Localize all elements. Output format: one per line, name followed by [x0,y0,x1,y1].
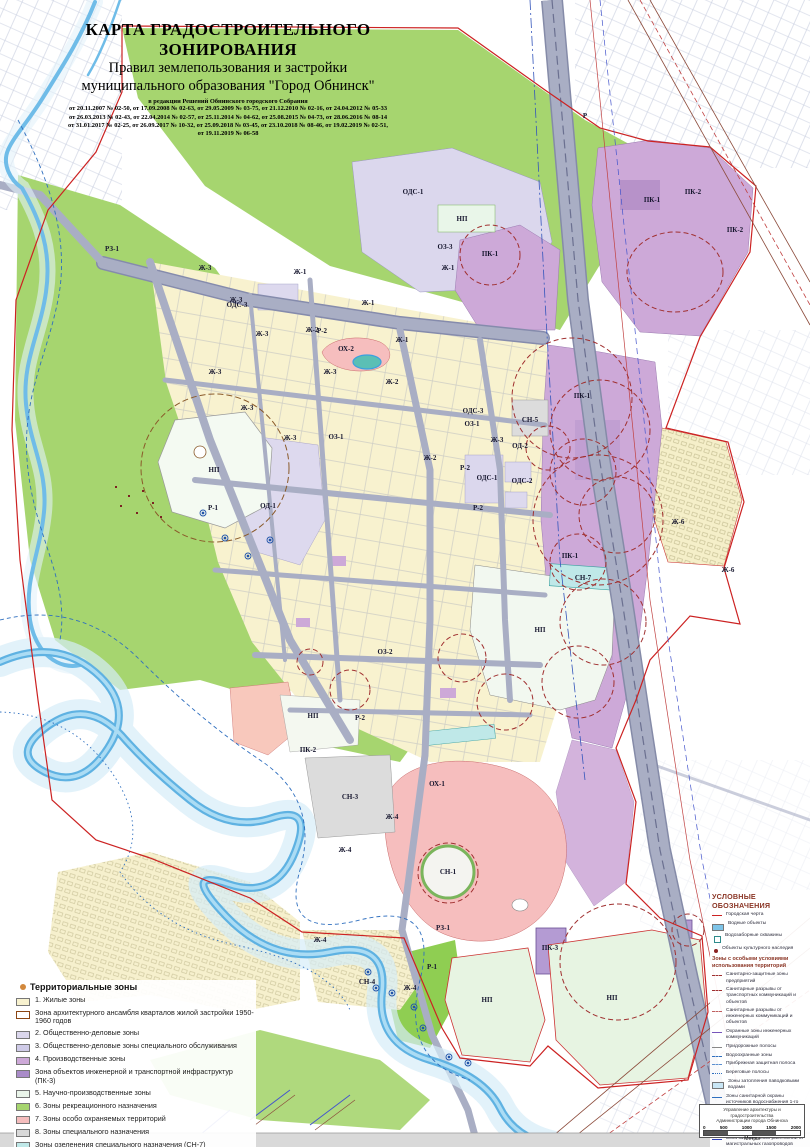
symbol-legend-item: Санитарные разрывы от транспортных комму… [712,987,810,1005]
water-protection-icon [712,1056,722,1057]
symbols-legend-subheader: Зоны с особыми условиями использования т… [712,956,810,970]
city-boundary-icon [712,915,722,916]
symbol-legend-item: Объекты культурного наследия [712,946,810,953]
symbol-legend-item: Придорожные полосы [712,1044,810,1050]
symbol-legend-label: Санитарные разрывы от инженерных коммуни… [726,1008,810,1026]
zone-legend-item: 1. Жилые зоны [16,996,254,1006]
symbol-legend-label: Прибрежная защитная полоса [726,1061,795,1067]
zoning-map-page: КАРТА ГРАДОСТРОИТЕЛЬНОГО ЗОНИРОВАНИЯ Пра… [0,0,810,1147]
heritage-icon [714,949,718,953]
zone-legend-label: 3. Общественно-деловые зоны специального… [35,1042,237,1050]
zone-legend-item: 8. Зоны специального назначения [16,1128,254,1138]
scale-box: Управление архитектуры и градостроительс… [699,1104,805,1138]
zone-color-swatch [16,1090,30,1098]
zone-legend-label: 8. Зоны специального назначения [35,1128,149,1136]
sanitary-zone-icon [712,975,722,976]
symbol-legend-label: Зоны затопления паводковыми водами [728,1079,810,1091]
zone-color-swatch [16,1129,30,1137]
symbol-legend-label: Охранные зоны инженерных коммуникаций [726,1029,810,1041]
credit-line-1: Управление архитектуры и градостроительс… [703,1107,801,1118]
zone-color-swatch [16,1057,30,1065]
scale-tick: 500 [720,1125,728,1130]
zone-legend-label: Зоны озеленения специального назначения … [35,1141,206,1147]
zone-legend-label: 1. Жилые зоны [35,996,85,1004]
symbol-legend-item: Санитарно-защитные зоны предприятий [712,972,810,984]
symbol-legend-label: Береговые полосы [726,1070,769,1076]
credit-line-2: Администрации города Обнинска [703,1118,801,1124]
zone-legend-item: 2. Общественно-деловые зоны [16,1029,254,1039]
water-well-icon [714,936,721,943]
flood-zone-icon [712,1082,724,1089]
symbols-legend-title: УСЛОВНЫЕ ОБОЗНАЧЕНИЯ [712,892,810,910]
zone-legend-item: 6. Зоны рекреационного назначения [16,1102,254,1112]
zone-legend-item: Зоны озеленения специального назначения … [16,1141,254,1147]
zone-legend-label: 6. Зоны рекреационного назначения [35,1102,157,1110]
zone-legend-item: 3. Общественно-деловые зоны специального… [16,1042,254,1052]
symbol-legend-label: Водозаборные скважины [725,933,782,939]
utility-protection-icon [712,1032,722,1033]
zone-legend-label: 2. Общественно-деловые зоны [35,1029,139,1037]
scale-tick: 2000 [791,1125,801,1130]
zone-legend-label: Зона архитектурного ансамбля кварталов ж… [35,1009,254,1026]
utility-gap-icon [712,1011,722,1012]
symbol-legend-label: Объекты культурного наследия [722,946,793,952]
shore-strip-icon [712,1073,722,1074]
scale-tick: 1000 [742,1125,752,1130]
zone-color-swatch [16,1011,30,1019]
roadside-strip-icon [712,1047,722,1048]
zone-legend-label: 5. Научно-производственные зоны [35,1089,151,1097]
symbol-legend-item: Санитарные разрывы от инженерных коммуни… [712,1008,810,1026]
zone-color-swatch [16,1031,30,1039]
zone-legend-label: Зона объектов инженерной и транспортной … [35,1068,254,1085]
zone-legend-item: 4. Производственные зоны [16,1055,254,1065]
scale-tick: 1500 [766,1125,776,1130]
scale-bar [703,1130,801,1136]
symbol-legend-label: Водные объекты [728,921,766,927]
symbol-legend-item: Зоны затопления паводковыми водами [712,1079,810,1091]
water-source-protection-icon [712,1097,722,1098]
symbol-legend-label: Придорожные полосы [726,1044,776,1050]
symbol-legend-item: Прибрежная защитная полоса [712,1061,810,1067]
territorial-zones-header: Территориальные зоны [20,982,254,992]
zone-color-swatch [16,1116,30,1124]
zone-color-swatch [16,1044,30,1052]
territorial-zones-title: Территориальные зоны [30,982,137,992]
zone-color-swatch [16,1103,30,1111]
symbol-legend-item: Береговые полосы [712,1070,810,1076]
zone-color-swatch [16,1142,30,1147]
symbol-legend-label: Городская черта [726,912,763,918]
zone-color-swatch [16,998,30,1006]
symbol-legend-item: Водоохранные зоны [712,1053,810,1059]
zone-legend-item: 5. Научно-производственные зоны [16,1089,254,1099]
territorial-zones-legend: Территориальные зоны 1. Жилые зоныЗона а… [14,980,256,1147]
zone-legend-label: 4. Производственные зоны [35,1055,125,1063]
symbol-legend-label: Водоохранные зоны [726,1053,772,1059]
symbol-legend-item: Охранные зоны инженерных коммуникаций [712,1029,810,1041]
zone-legend-item: 7. Зоны особо охраняемых территорий [16,1115,254,1125]
scale-tick: 0 [703,1125,706,1130]
water-objects-icon [712,924,724,931]
zone-legend-item: Зона объектов инженерной и транспортной … [16,1068,254,1085]
symbol-legend-item: Водные объекты [712,921,810,931]
transport-gap-icon [712,990,722,991]
zone-legend-label: 7. Зоны особо охраняемых территорий [35,1115,166,1123]
symbol-legend-item: Городская черта [712,912,810,918]
zone-color-swatch [16,1070,30,1078]
symbol-legend-label: Санитарные разрывы от транспортных комму… [726,987,810,1005]
zone-legend-item: Зона архитектурного ансамбля кварталов ж… [16,1009,254,1026]
symbol-legend-label: Санитарно-защитные зоны предприятий [726,972,810,984]
map-canvas [0,0,810,1147]
symbol-legend-item: Водозаборные скважины [712,933,810,943]
coastal-strip-icon [712,1064,722,1065]
scale-unit: Метры [703,1136,801,1142]
legend-bullet-icon [20,984,26,990]
